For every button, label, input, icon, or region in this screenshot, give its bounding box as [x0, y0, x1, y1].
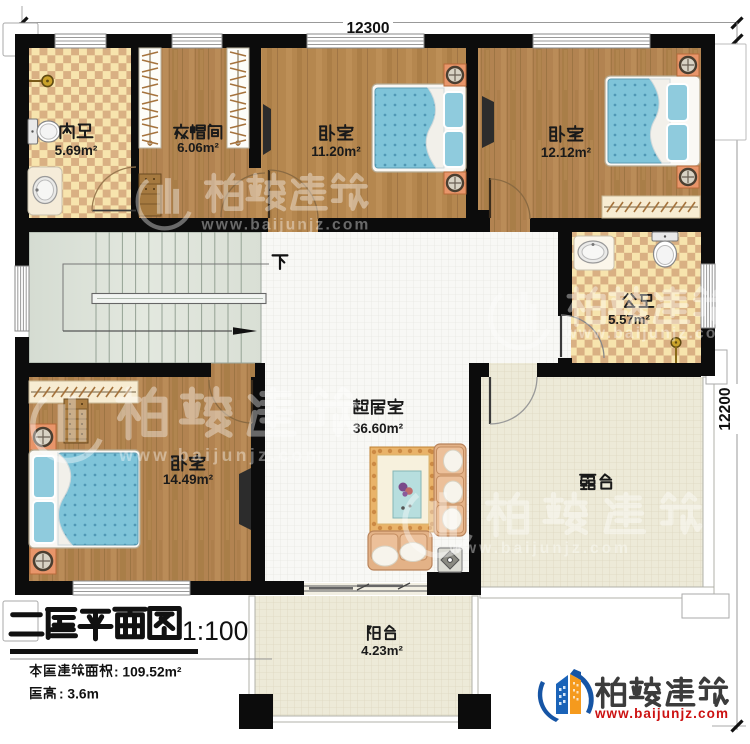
svg-text:12.12m²: 12.12m² — [541, 145, 592, 160]
svg-text:www.baijunjz.com: www.baijunjz.com — [201, 217, 371, 234]
svg-text:www.baijunjz.com: www.baijunjz.com — [594, 706, 729, 721]
svg-text:11.20m²: 11.20m² — [311, 144, 361, 159]
svg-text:: 3.6m: : 3.6m — [59, 687, 99, 702]
svg-text:1:100: 1:100 — [182, 616, 248, 646]
svg-text:14.49m²: 14.49m² — [163, 472, 214, 487]
svg-text:: 109.52m²: : 109.52m² — [114, 665, 182, 680]
svg-text:4.23m²: 4.23m² — [361, 643, 403, 658]
svg-text:5.69m²: 5.69m² — [55, 143, 98, 158]
svg-text:www.baijunjz.com: www.baijunjz.com — [118, 445, 324, 465]
svg-text:www.baijunjz.com: www.baijunjz.com — [448, 540, 631, 557]
svg-text:12200: 12200 — [717, 387, 734, 430]
svg-text:6.06m²: 6.06m² — [177, 140, 219, 155]
svg-text:36.60m²: 36.60m² — [353, 421, 404, 436]
svg-text:www.baijunjz.com: www.baijunjz.com — [564, 325, 734, 342]
